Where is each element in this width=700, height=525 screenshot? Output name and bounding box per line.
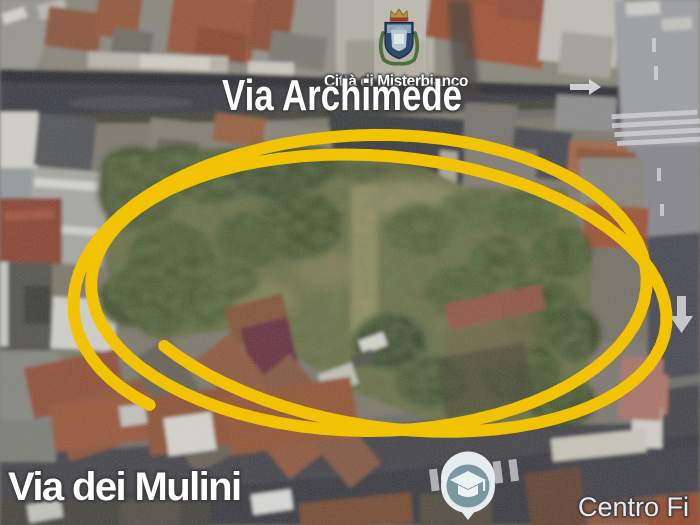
svg-text:Via Archimede: Via Archimede	[222, 71, 462, 120]
svg-text:Via dei Mulini: Via dei Mulini	[8, 465, 240, 509]
svg-text:Centro Fi: Centro Fi	[578, 492, 689, 522]
